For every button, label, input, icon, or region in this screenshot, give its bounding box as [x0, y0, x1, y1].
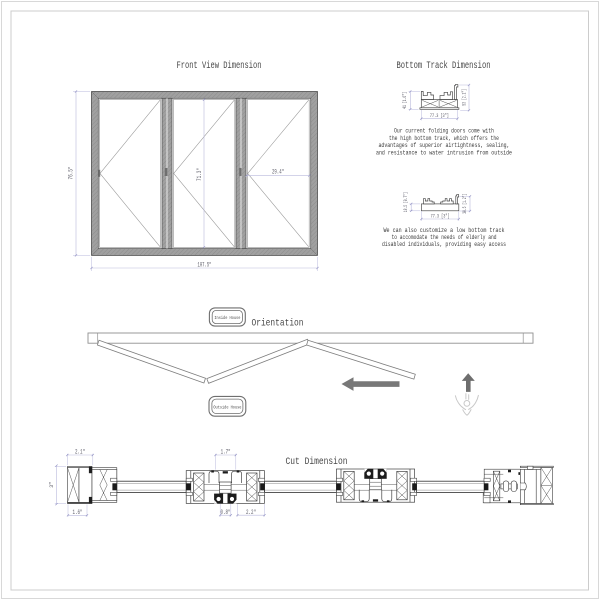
svg-text:29.4″: 29.4″	[272, 168, 284, 175]
svg-text:1.7″: 1.7″	[221, 448, 231, 455]
svg-text:76.5″: 76.5″	[67, 167, 74, 180]
svg-text:107.5″: 107.5″	[198, 261, 212, 268]
svg-text:Front View Dimension: Front View Dimension	[177, 60, 262, 72]
svg-text:30.5 [1.2″]: 30.5 [1.2″]	[462, 194, 468, 214]
svg-text:41 [1.6″]: 41 [1.6″]	[402, 92, 408, 109]
svg-text:the high bottom track, which o: the high bottom track, which offers the	[389, 135, 499, 142]
svg-text:Orientation: Orientation	[252, 317, 304, 329]
svg-text:1.6″: 1.6″	[73, 509, 83, 516]
svg-text:2.2″: 2.2″	[246, 509, 256, 516]
svg-text:Inside House: Inside House	[214, 315, 240, 321]
svg-text:disabled individuals, providin: disabled individuals, providing easy acc…	[382, 241, 506, 248]
svg-text:77.3 [3″]: 77.3 [3″]	[430, 113, 449, 119]
svg-text:Our current folding doors come: Our current folding doors come with	[394, 128, 494, 135]
svg-text:Outside House: Outside House	[213, 404, 241, 410]
svg-text:Bottom Track Dimension: Bottom Track Dimension	[397, 60, 491, 72]
svg-text:0.8″: 0.8″	[221, 509, 231, 516]
svg-text:71.3″: 71.3″	[196, 168, 203, 181]
svg-text:3″: 3″	[48, 482, 55, 488]
svg-text:and resistance to water intrus: and resistance to water intrusion from o…	[376, 149, 512, 156]
svg-text:18.5 [0.7″]: 18.5 [0.7″]	[403, 192, 409, 212]
svg-text:77.3 [3″]: 77.3 [3″]	[431, 213, 450, 219]
svg-text:Cut Dimension: Cut Dimension	[286, 456, 348, 468]
svg-text:53 [2.1″]: 53 [2.1″]	[461, 89, 467, 106]
svg-text:2.1″: 2.1″	[75, 448, 85, 455]
svg-text:advantages of superior airtigh: advantages of superior airtightness, sea…	[379, 142, 510, 149]
